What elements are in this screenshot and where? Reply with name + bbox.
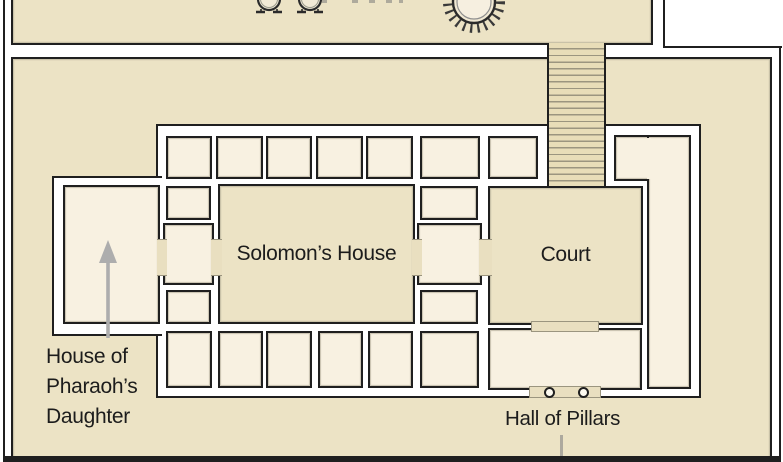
solomons-house-label-text: Solomon’s House <box>237 243 397 265</box>
side-room <box>488 136 538 179</box>
pillared-doorway-threshold <box>529 386 601 398</box>
side-room <box>316 136 363 179</box>
cutoff-mark <box>352 0 358 3</box>
solomons-house-label: Solomon’s House <box>218 184 415 324</box>
l-shaped-hall-room <box>647 138 652 179</box>
laver-icon <box>254 0 284 20</box>
bronze-sea-icon <box>434 0 514 38</box>
pillar-icon <box>544 387 555 398</box>
side-room <box>318 331 363 388</box>
cutoff-mark <box>399 0 403 3</box>
gate-room <box>163 223 214 285</box>
bottom-wall-strip <box>4 456 779 462</box>
side-room <box>266 136 312 179</box>
pharaohs-daughter-label-line2: Pharaoh’s <box>46 372 186 402</box>
side-room <box>266 331 312 388</box>
gate-threshold <box>157 239 167 276</box>
pharaohs-daughter-label-line1: House of <box>46 342 186 372</box>
side-room <box>216 136 263 179</box>
side-room <box>420 186 478 220</box>
side-room <box>218 331 263 388</box>
pharaohs-daughter-label-line3: Daughter <box>46 402 186 432</box>
side-room <box>366 136 413 179</box>
hall-of-pillars-label-text: Hall of Pillars <box>505 407 620 430</box>
cutoff-mark <box>386 0 392 3</box>
side-room <box>420 136 480 179</box>
side-room <box>420 290 478 324</box>
side-room <box>420 331 479 388</box>
cutoff-mark <box>369 0 375 3</box>
outer-wall-top-right-vertical <box>663 0 665 48</box>
court-label-text: Court <box>541 244 591 266</box>
under-court-hall-room <box>488 328 642 390</box>
hall-of-pillars-label: Hall of Pillars <box>465 408 660 430</box>
side-room <box>368 331 413 388</box>
gate-room <box>417 223 482 285</box>
pharaohs-daughter-label: House of Pharaoh’s Daughter <box>46 342 186 432</box>
side-room <box>166 290 211 324</box>
side-room <box>166 136 212 179</box>
outer-wall-right-line <box>779 46 781 462</box>
up-arrow-icon <box>95 238 121 340</box>
outer-wall-top-right-horizontal <box>663 46 782 48</box>
upper-court-area <box>11 0 653 45</box>
court-label: Court <box>488 186 643 325</box>
l-shaped-hall-room <box>647 135 691 389</box>
side-room <box>166 186 211 220</box>
pillar-icon <box>578 387 589 398</box>
laver-icon <box>295 0 325 20</box>
outer-wall-left-line <box>3 0 5 462</box>
staircase <box>547 43 606 187</box>
solomons-palace-plan: Solomon’s House Court House of Pharaoh’s… <box>0 0 783 462</box>
